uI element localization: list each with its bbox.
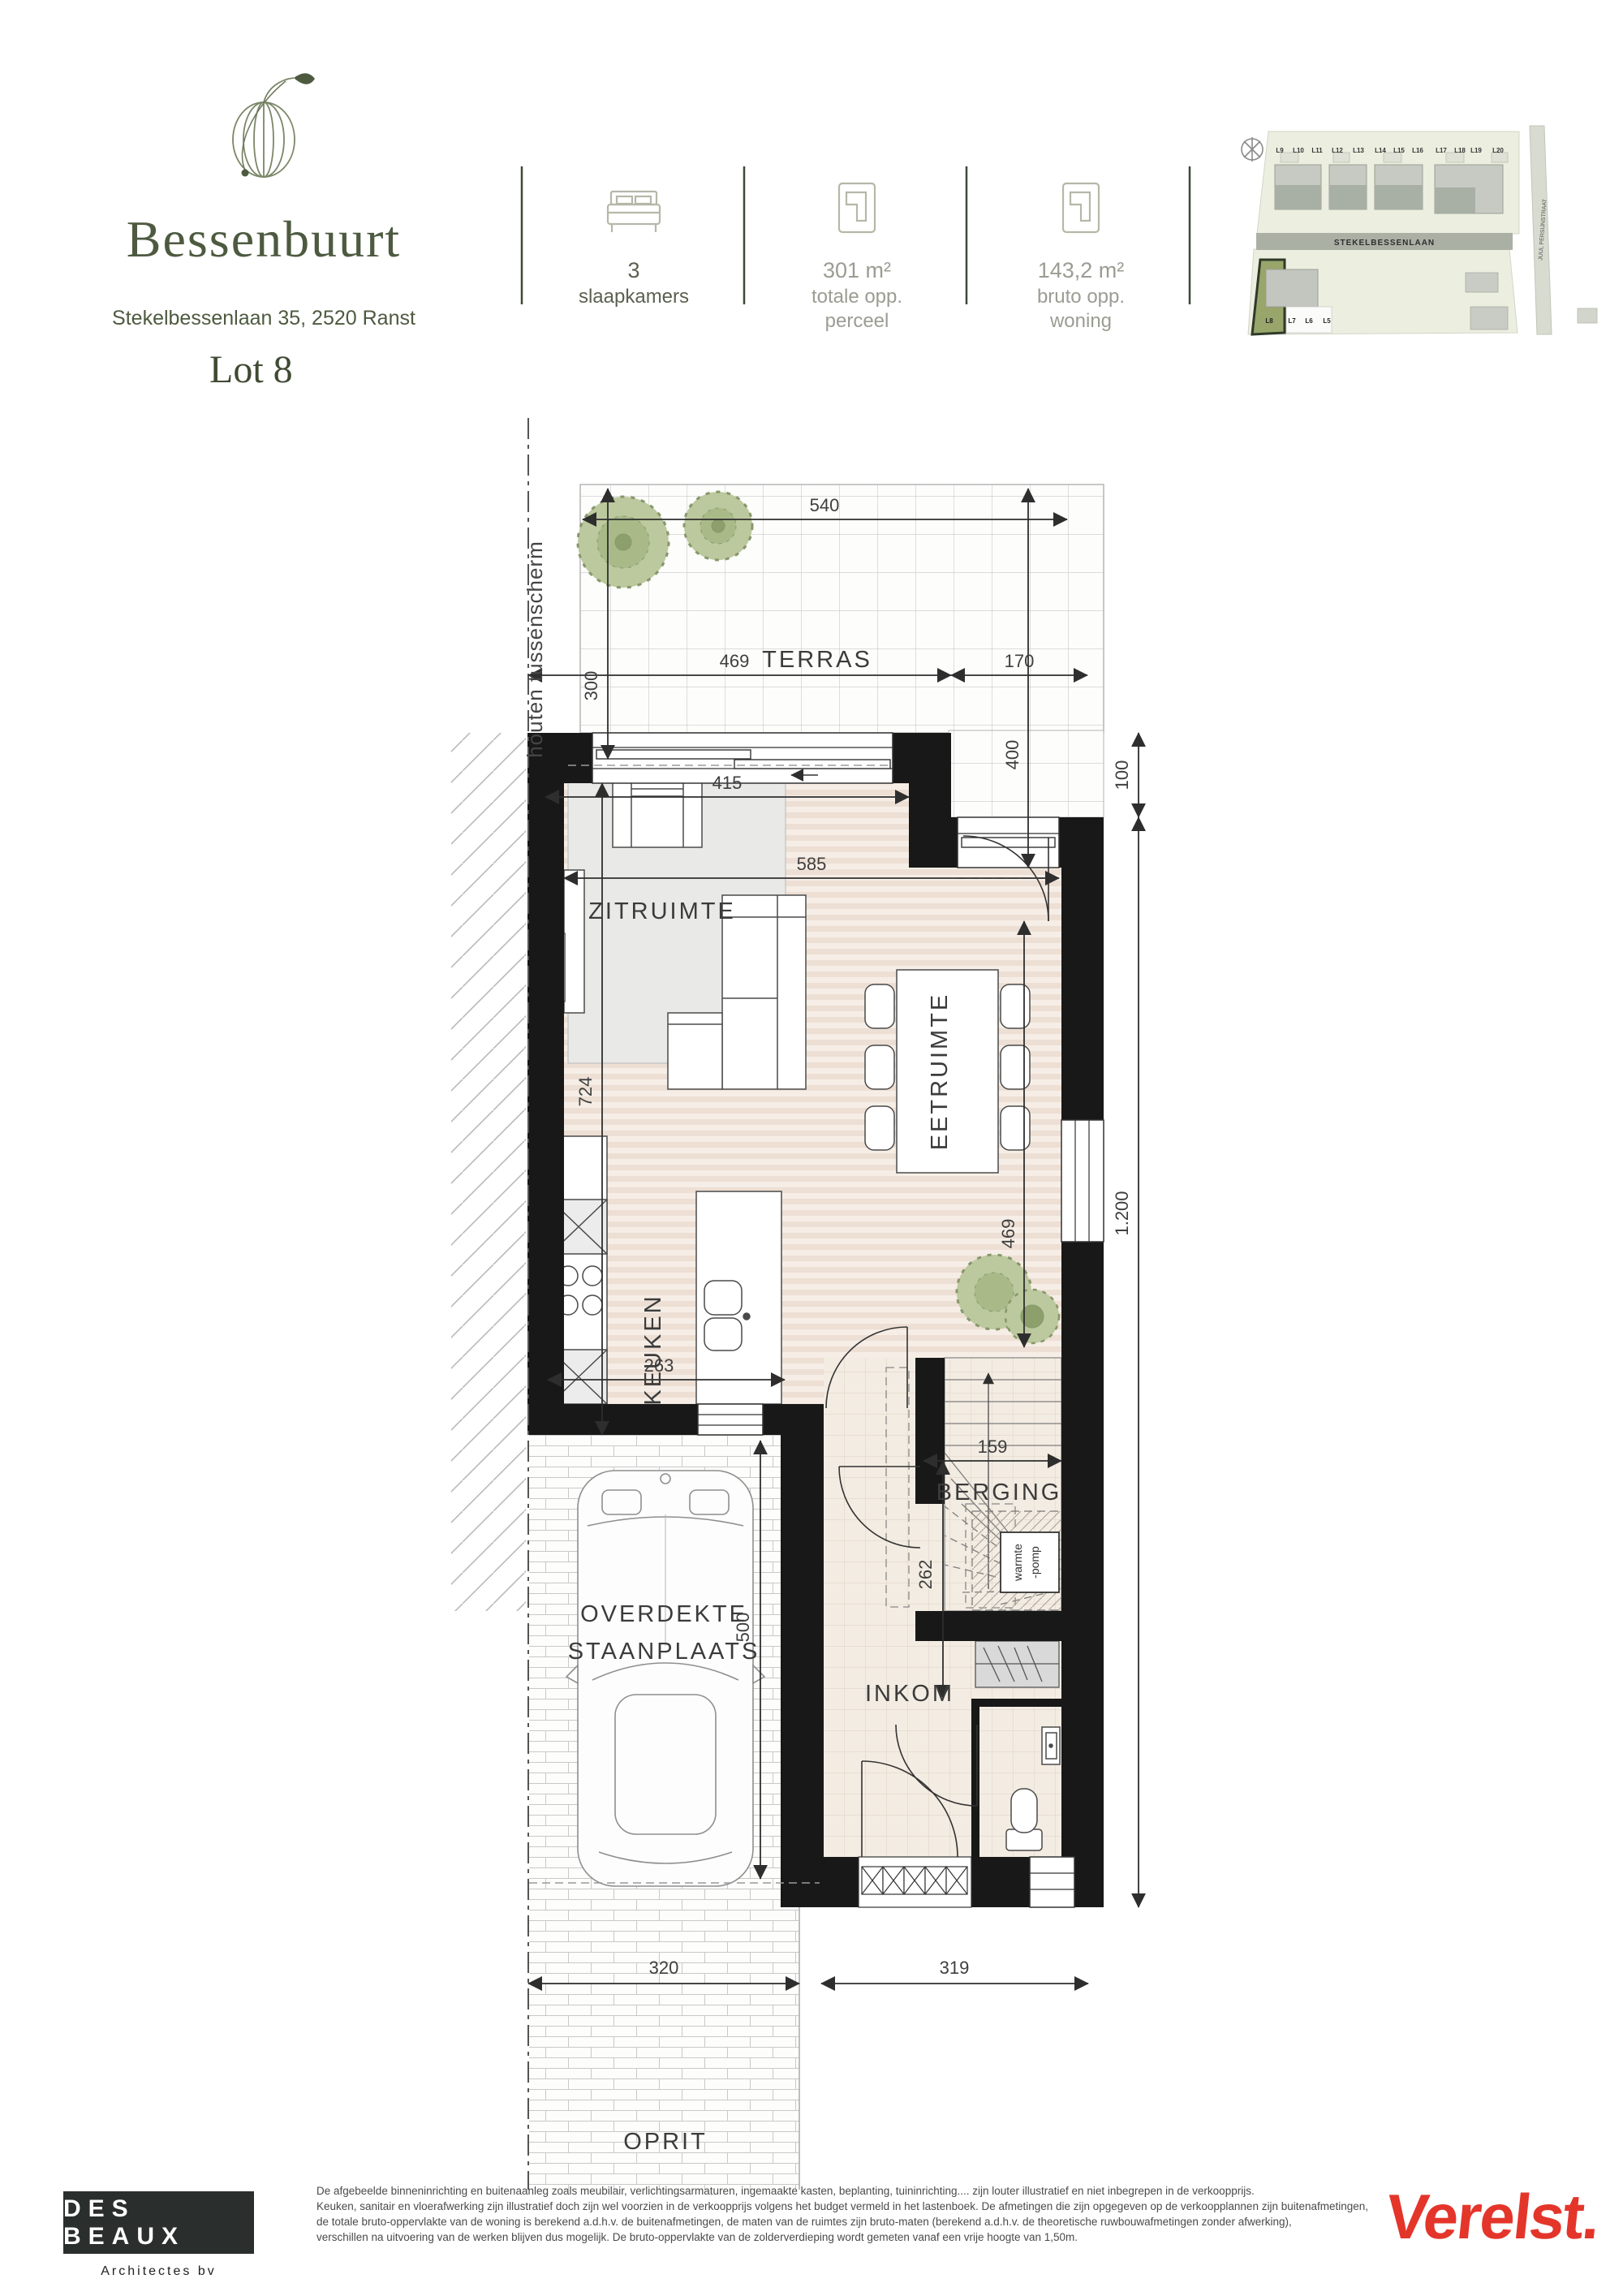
bed-icon <box>608 192 660 232</box>
dim-469-terras: 469 <box>720 651 750 671</box>
room-label-staanplaats-2: STAANPLAATS <box>568 1639 760 1665</box>
lot-label-l8: L8 <box>1265 317 1273 325</box>
developer-logo: Verelst. <box>1327 2180 1603 2254</box>
car <box>566 1471 764 1886</box>
lot-label: L17 <box>1436 147 1447 154</box>
lot-label: L11 <box>1311 147 1323 154</box>
dim-262: 262 <box>915 1560 936 1590</box>
lot-label: L12 <box>1332 147 1343 154</box>
heat-pump-label-1: warmte <box>1011 1544 1024 1582</box>
dim-1200: 1.200 <box>1112 1191 1132 1235</box>
brand-logo-berry-icon <box>233 73 315 177</box>
disclaimer-line: Keuken, sanitair en vloerafwerking zijn … <box>316 2199 1368 2214</box>
lot-label: L16 <box>1412 147 1423 154</box>
floorplan-icon-2 <box>1063 183 1099 232</box>
toilet <box>1006 1789 1042 1850</box>
window-garden-door <box>958 817 1059 868</box>
window-wc <box>1030 1857 1074 1907</box>
site-map: STEKELBESSENLAAN JUUL PERSIJNSTRAAT L9 L… <box>1242 126 1597 334</box>
lot-title: Lot 8 <box>209 347 293 392</box>
architect-subtitle: Architectes bv <box>63 2264 254 2279</box>
room-label-eetruimte: EETRUIMTE <box>927 993 953 1151</box>
stat-parcel-label: totale opp. perceel <box>788 285 926 334</box>
dim-585: 585 <box>797 854 827 874</box>
dim-469-dining: 469 <box>998 1219 1018 1249</box>
dim-415: 415 <box>712 773 743 793</box>
floorplan-icon <box>839 183 875 232</box>
front-door-opening <box>859 1857 971 1907</box>
terras-recess-floor <box>949 730 1104 817</box>
stat-gross-label: bruto opp. woning <box>1012 285 1150 334</box>
lot-label: L6 <box>1305 317 1313 325</box>
disclaimer: De afgebeelde binneninrichting en buiten… <box>316 2183 1368 2246</box>
closet <box>975 1641 1059 1687</box>
room-label-zitruimte: ZITRUIMTE <box>588 898 736 924</box>
stat-bedrooms: 3 slaapkamers <box>565 256 703 309</box>
stat-bedrooms-value: 3 <box>565 256 703 285</box>
lot-label: L9 <box>1276 147 1284 154</box>
room-label-berging: BERGING <box>936 1480 1062 1506</box>
dim-170: 170 <box>1005 651 1035 671</box>
dim-100: 100 <box>1112 760 1132 790</box>
dim-159: 159 <box>978 1437 1008 1457</box>
heat-pump-label-2: -pomp <box>1028 1546 1041 1579</box>
lot-label: L10 <box>1293 147 1304 154</box>
boundary-label: houten tussenscherm <box>523 541 547 758</box>
lot-label: L15 <box>1393 147 1405 154</box>
disclaimer-line: De afgebeelde binneninrichting en buiten… <box>316 2183 1368 2199</box>
window-kitchen <box>698 1404 763 1435</box>
lot-label: L20 <box>1492 147 1504 154</box>
project-address: Stekelbessenlaan 35, 2520 Ranst <box>0 307 527 330</box>
architect-logo: DES BEAUX <box>63 2191 254 2254</box>
dim-724: 724 <box>575 1077 596 1107</box>
lot-label: L14 <box>1375 147 1386 154</box>
dim-540: 540 <box>810 495 840 515</box>
window-side-dining <box>1061 1120 1104 1242</box>
lot-label: L19 <box>1470 147 1482 154</box>
disclaimer-line: verschillen na uitvoering van de werken … <box>316 2229 1368 2245</box>
stat-parcel-value: 301 m² <box>788 256 926 285</box>
stat-gross-value: 143,2 m² <box>1012 256 1150 285</box>
room-label-keuken: KEUKEN <box>640 1294 666 1405</box>
stat-gross-area: 143,2 m² bruto opp. woning <box>1012 256 1150 334</box>
armchair <box>613 773 702 847</box>
lot-label: L7 <box>1288 317 1296 325</box>
room-label-staanplaats-1: OVERDEKTE <box>580 1601 747 1627</box>
wash-basin <box>1042 1727 1060 1764</box>
neighbour-hatch <box>451 733 526 1611</box>
site-map-street-label: STEKELBESSENLAAN <box>1334 239 1435 248</box>
floor-plan: warmte -pomp <box>451 418 1139 2190</box>
lot-label: L13 <box>1353 147 1364 154</box>
disclaimer-line: de totale bruto-oppervlakte van de wonin… <box>316 2214 1368 2229</box>
architect-name: DES BEAUX <box>63 2195 254 2251</box>
page-graphics: STEKELBESSENLAAN JUUL PERSIJNSTRAAT L9 L… <box>0 0 1623 2296</box>
dim-400: 400 <box>1002 740 1022 770</box>
dim-300: 300 <box>581 671 601 701</box>
dim-319: 319 <box>940 1958 970 1978</box>
room-label-inkom: INKOM <box>865 1681 954 1707</box>
kitchen-island <box>696 1191 781 1404</box>
sliding-window-rear <box>592 733 893 783</box>
lot-label: L5 <box>1323 317 1331 325</box>
stat-parcel-area: 301 m² totale opp. perceel <box>788 256 926 334</box>
project-title: Bessenbuurt <box>0 209 527 269</box>
room-label-terras: TERRAS <box>762 647 872 673</box>
dim-320: 320 <box>649 1958 679 1978</box>
room-label-oprit: OPRIT <box>623 2129 708 2155</box>
heat-pump: warmte -pomp <box>972 1511 1063 1610</box>
lot-label: L18 <box>1454 147 1466 154</box>
compass-icon <box>1242 137 1263 162</box>
stat-bedrooms-label: slaapkamers <box>565 285 703 309</box>
